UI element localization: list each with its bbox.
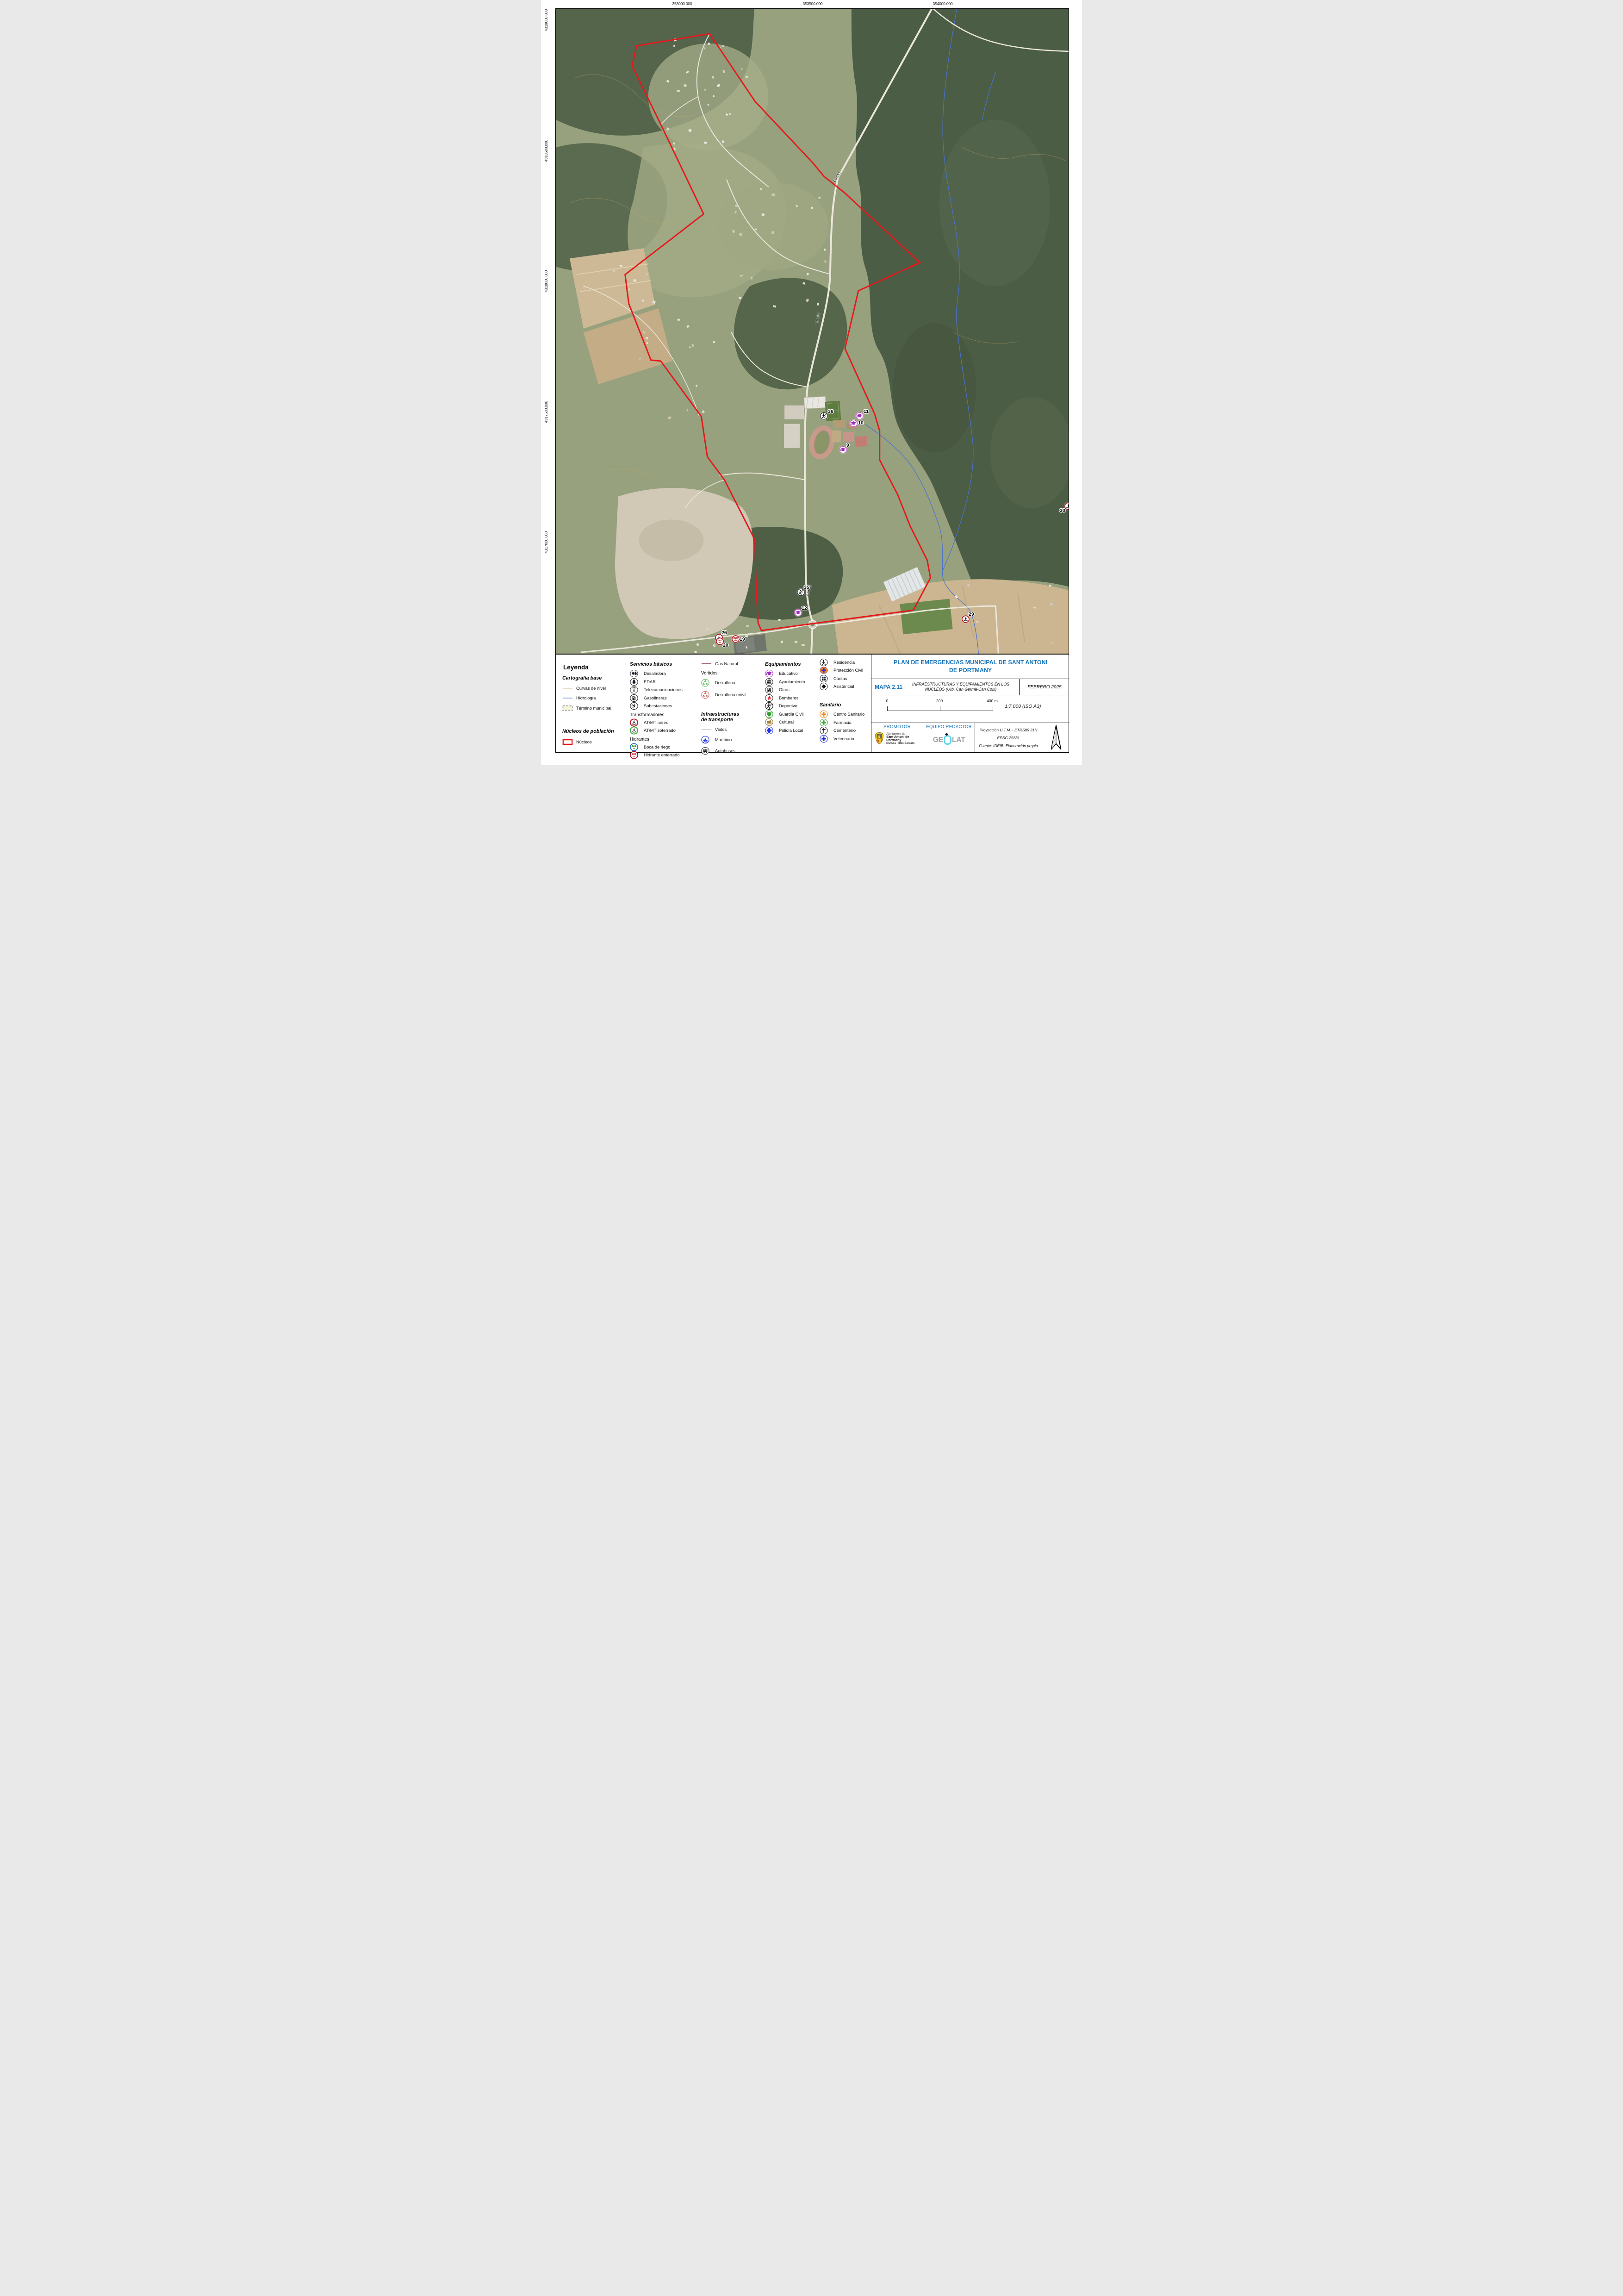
proteccion-icon xyxy=(820,666,828,674)
map-sheet: 353000.000353500.000354000.000 4319000.0… xyxy=(541,0,1082,765)
deportivo-icon xyxy=(797,588,805,596)
legend-column-2: Servicios básicosDesaladoraEDARTelecomun… xyxy=(630,655,701,752)
educativo-icon xyxy=(765,669,773,678)
educativo-icon xyxy=(856,412,864,420)
easting-label: 354000.000 xyxy=(933,1,953,6)
legend-subsection-header: Hidrantes xyxy=(630,737,701,742)
hidrante-icon xyxy=(732,635,740,643)
legend-item-label: Otros xyxy=(779,687,790,692)
map-marker-number: 36 xyxy=(828,409,833,414)
autobuses-icon xyxy=(701,747,709,755)
legend-item-label: Cementerio xyxy=(833,728,856,733)
legend-item-label: Deixalleria xyxy=(715,680,735,685)
projection-line3: Fuente: IDEIB. Elaboración propia xyxy=(977,743,1040,748)
legend-item-label: Curvas de nivel xyxy=(576,686,606,691)
legend-item: Policía Local xyxy=(765,726,820,735)
northing-label: 4318000.000 xyxy=(544,270,548,292)
recycle-green-icon xyxy=(701,679,709,687)
map-marker-number: 11 xyxy=(864,409,869,414)
legend-item-label: Gas Natural xyxy=(715,661,738,666)
legend-item-label: Autobuses xyxy=(715,749,735,753)
promotor-org-line1: Ajuntament de xyxy=(886,732,922,736)
residencia-icon xyxy=(820,658,828,667)
legend-section-header: Servicios básicos xyxy=(630,661,701,667)
aerial-terrain xyxy=(556,9,1069,654)
legend-item-label: Ayuntamiento xyxy=(779,680,805,684)
legend-item: Viales xyxy=(701,725,765,734)
contour-line-icon xyxy=(562,684,573,693)
legend-item: Centro Sanitario xyxy=(820,710,870,718)
deportivo-icon xyxy=(820,412,828,420)
legend-item-label: Bomberos xyxy=(779,696,798,700)
legend-item: Guardia Civil xyxy=(765,710,820,718)
legend-item: Veterinario xyxy=(820,735,870,743)
legend-item: Cementerio xyxy=(820,726,870,735)
map-marker-number: 20 xyxy=(723,643,728,648)
scale-tick-0: 0 xyxy=(886,699,889,703)
cruz-verde-icon xyxy=(820,718,828,727)
legend-item: Protección Civil xyxy=(820,667,870,675)
scale-text: 1:7.000 (ISO A3) xyxy=(1005,704,1041,709)
legend-item-label: Centro Sanitario xyxy=(833,712,864,717)
legend-item-label: Deixalleria móvil xyxy=(715,693,746,697)
otros-icon xyxy=(765,686,773,694)
legend-section-header: Sanitario xyxy=(820,702,870,708)
educativo-icon xyxy=(794,609,802,617)
legend-subsection-header: Vertidos xyxy=(701,671,765,676)
map-marker-10-educativo-icon xyxy=(850,419,858,427)
legend-item: Subestaciones xyxy=(630,702,701,710)
legend-item-label: Protección Civil xyxy=(833,668,863,673)
map-marker-number: 9 xyxy=(846,443,849,448)
scale-tick-200: 200 xyxy=(936,699,943,703)
legend-item-label: Desaladora xyxy=(644,671,666,676)
legend-item-label: Marítimo xyxy=(715,737,732,742)
cruz-azul-icon xyxy=(820,735,828,743)
bomberos-icon xyxy=(765,694,773,702)
ayuntamiento-icon xyxy=(765,678,773,686)
map-title: PLAN DE EMERGENCIAS MUNICIPAL DE SANT AN… xyxy=(871,655,1070,679)
promotor-org-line2: Sant Antoni de Portmany xyxy=(886,736,922,742)
legend-item-label: Guardia Civil xyxy=(779,712,803,717)
legend-spacer xyxy=(701,701,765,707)
title-block: PLAN DE EMERGENCIAS MUNICIPAL DE SANT AN… xyxy=(871,655,1070,752)
legend-item: EDAR xyxy=(630,678,701,686)
legend-column-1: LeyendaCartografía baseCurvas de nivelHi… xyxy=(562,655,630,752)
legend-item: Telecomunicaciones xyxy=(630,686,701,694)
easting-label: 353500.000 xyxy=(803,1,823,6)
termino-swatch-icon xyxy=(562,704,573,712)
legend-item: Asistencial xyxy=(820,683,870,691)
map-marker-number: 29 xyxy=(969,612,974,617)
hidrante-blue-icon xyxy=(630,743,638,751)
legend-item: Autobuses xyxy=(701,745,765,756)
legend-item-label: Veterinario xyxy=(833,736,854,741)
legend-item-label: Núcleos xyxy=(576,740,592,744)
easting-label: 353000.000 xyxy=(672,1,692,6)
map-marker-number: 12 xyxy=(802,606,807,611)
legend-item: Otros xyxy=(765,686,820,694)
legend-item: Deportivo xyxy=(765,702,820,710)
legend-item-label: Cultural xyxy=(779,720,794,724)
legend-title: Leyenda xyxy=(563,664,630,671)
geolat-logo-lat: LAT xyxy=(952,736,965,744)
geolat-logo: GELAT xyxy=(923,735,975,745)
location-pin-icon xyxy=(945,733,948,736)
legend-item: Gasolineras xyxy=(630,694,701,702)
legend-section-header: Cartografía base xyxy=(562,675,630,681)
legend-item-label: AT/MT soterrado xyxy=(644,728,676,733)
subestacion-icon xyxy=(630,702,638,710)
legend-item: Cultural xyxy=(765,718,820,726)
legend-section-header: Núcleos de población xyxy=(562,729,630,734)
legend-item: Educativo xyxy=(765,669,820,678)
legend-spacer xyxy=(765,655,820,657)
legend-item-label: Subestaciones xyxy=(644,704,672,708)
trafo-green-icon xyxy=(630,726,638,735)
legend-item: AT/MT aéreo xyxy=(630,718,701,727)
legend-item-label: Deportivo xyxy=(779,704,797,708)
equipo-redactor-cell: EQUIPO REDACTOR GELAT xyxy=(923,723,975,752)
trafo-icon xyxy=(630,718,638,727)
legend-column-4: EquipamientosEducativoAyuntamientoOtrosB… xyxy=(765,655,820,752)
legend-item-label: Término municipal xyxy=(576,706,611,711)
desaladora-icon xyxy=(630,669,638,678)
educativo-icon xyxy=(839,446,847,454)
telecom-icon xyxy=(630,686,638,694)
cultural-icon xyxy=(765,718,773,726)
map-marker-12-educativo-icon xyxy=(794,609,802,617)
hidrante-icon xyxy=(630,751,638,759)
map-marker-number: 19 xyxy=(740,637,745,642)
geolat-logo-o-icon xyxy=(944,735,951,745)
geolat-logo-ge: GE xyxy=(933,736,943,744)
cementerio-icon xyxy=(820,726,828,735)
viales-line-icon xyxy=(701,725,712,734)
legend-item-label: EDAR xyxy=(644,680,656,684)
map-marker-number: 35 xyxy=(804,585,809,590)
legend-item: Marítimo xyxy=(701,734,765,745)
map-marker-11-educativo-icon xyxy=(856,412,864,420)
map-marker-35-deportivo-icon xyxy=(797,588,805,596)
legend-item: Cáritas xyxy=(820,674,870,683)
legend-item-label: Viales xyxy=(715,727,727,732)
maritimo-icon xyxy=(701,736,709,744)
legend-section-header: Equipamientos xyxy=(765,661,820,667)
guardia-icon xyxy=(765,710,773,718)
legend-spacer xyxy=(630,655,701,657)
promotor-header: PROMOTOR xyxy=(871,724,923,730)
scale-tick-400: 400 m xyxy=(987,699,998,703)
legend-item: AT/MT soterrado xyxy=(630,726,701,735)
legend-item: Término municipal xyxy=(562,703,630,713)
map-canvas: EI-651EI-651EI-651 361110935122620192930 xyxy=(555,8,1069,654)
legend-item: Farmacia xyxy=(820,718,870,727)
map-code: MAPA 2.11 xyxy=(875,684,902,690)
nucleos-swatch-icon xyxy=(562,738,573,746)
legend: LeyendaCartografía baseCurvas de nivelHi… xyxy=(556,655,871,752)
cruz-naranja-icon xyxy=(820,710,828,718)
caritas-icon xyxy=(820,674,828,683)
projection-line2: EPSG 25831 xyxy=(977,736,1040,740)
gas-line-icon xyxy=(701,660,712,668)
map-marker-20-hidrante-icon xyxy=(716,637,724,645)
map-marker-number: 26 xyxy=(721,630,727,636)
northing-label: 4318500.000 xyxy=(544,140,548,162)
legend-item-label: Educativo xyxy=(779,671,798,676)
legend-item-label: Telecomunicaciones xyxy=(644,687,683,692)
projection-cell: Proyección U.T.M. - ETRS89 31N EPSG 2583… xyxy=(975,723,1042,752)
northing-label: 4317500.000 xyxy=(544,401,548,423)
asistencial-icon xyxy=(820,682,828,691)
recycle-red-icon xyxy=(701,691,709,699)
legend-item: Desaladora xyxy=(630,669,701,678)
legend-item: Hidrante enterrado xyxy=(630,751,701,759)
map-marker-number: 10 xyxy=(858,421,864,426)
legend-item: Ayuntamiento xyxy=(765,678,820,686)
hidrante-icon xyxy=(716,637,724,645)
projection-line1: Proyección U.T.M. - ETRS89 31N xyxy=(977,728,1040,732)
legend-column-5: ResidenciaProtección CivilCáritasAsisten… xyxy=(820,655,870,752)
gasolinera-icon xyxy=(630,694,638,702)
map-marker-36-deportivo-icon xyxy=(820,412,828,420)
legend-item-label: Cáritas xyxy=(833,676,847,681)
legend-item: Curvas de nivel xyxy=(562,683,630,693)
legend-subsection-header: Transformadores xyxy=(630,712,701,717)
legend-item: Deixalleria xyxy=(701,677,765,689)
hydro-line-icon xyxy=(562,694,573,702)
north-arrow-icon xyxy=(1049,724,1063,751)
legend-section-header: Infraestructuras de transporte xyxy=(701,711,765,723)
bottom-block: LeyendaCartografía baseCurvas de nivelHi… xyxy=(555,654,1069,753)
deportivo-icon xyxy=(765,702,773,710)
ayuntamiento-coat-of-arms-icon xyxy=(874,731,884,745)
legend-item: Gas Natural xyxy=(701,659,765,668)
scale-bar xyxy=(887,706,993,711)
legend-column-3: Gas NaturalVertidosDeixalleriaDeixalleri… xyxy=(701,655,765,752)
educativo-icon xyxy=(850,419,858,427)
legend-item: Deixalleria móvil xyxy=(701,689,765,701)
trafo-icon xyxy=(962,615,970,623)
legend-item-label: Boca de riego xyxy=(644,745,670,749)
legend-item: Boca de riego xyxy=(630,743,701,751)
northing-label: 4317000.000 xyxy=(544,531,548,553)
map-marker-29-trafo-icon xyxy=(962,615,970,623)
map-marker-number: 30 xyxy=(1060,508,1065,513)
legend-item-label: Farmacia xyxy=(833,720,852,725)
legend-spacer xyxy=(701,655,765,659)
legend-item-label: Residencia xyxy=(833,660,855,665)
legend-spacer xyxy=(820,691,870,698)
edar-icon xyxy=(630,678,638,686)
legend-item-label: Policía Local xyxy=(779,728,803,733)
legend-item-label: AT/MT aéreo xyxy=(644,720,668,725)
legend-item: Núcleos xyxy=(562,737,630,748)
map-marker-9-educativo-icon xyxy=(839,446,847,454)
map-subtitle: INFRAESTRUCTURAS Y EQUIPAMIENTOS EN LOS … xyxy=(902,682,1019,692)
legend-item-label: Hidrología xyxy=(576,696,596,700)
map-marker-19-hidrante-icon xyxy=(732,635,740,643)
legend-item-label: Gasolineras xyxy=(644,696,667,700)
legend-item-label: Asistencial xyxy=(833,684,854,689)
north-arrow-cell xyxy=(1042,723,1070,752)
scale-bar-row: 0 200 400 m 1:7.000 (ISO A3) xyxy=(871,695,1070,723)
promotor-org-line3: Eivissa · Illes Balears xyxy=(886,742,922,745)
map-date: FEBRERO 2025 xyxy=(1019,679,1070,695)
legend-item: Residencia xyxy=(820,658,870,667)
policia-icon xyxy=(765,726,773,735)
legend-spacer xyxy=(562,713,630,724)
equipo-redactor-header: EQUIPO REDACTOR xyxy=(923,724,975,730)
legend-item: Bomberos xyxy=(765,694,820,702)
legend-item-label: Hidrante enterrado xyxy=(644,753,680,757)
northing-label: 4319000.000 xyxy=(544,9,548,31)
legend-item: Hidrología xyxy=(562,693,630,703)
promotor-cell: PROMOTOR Ajuntament de xyxy=(871,723,923,752)
